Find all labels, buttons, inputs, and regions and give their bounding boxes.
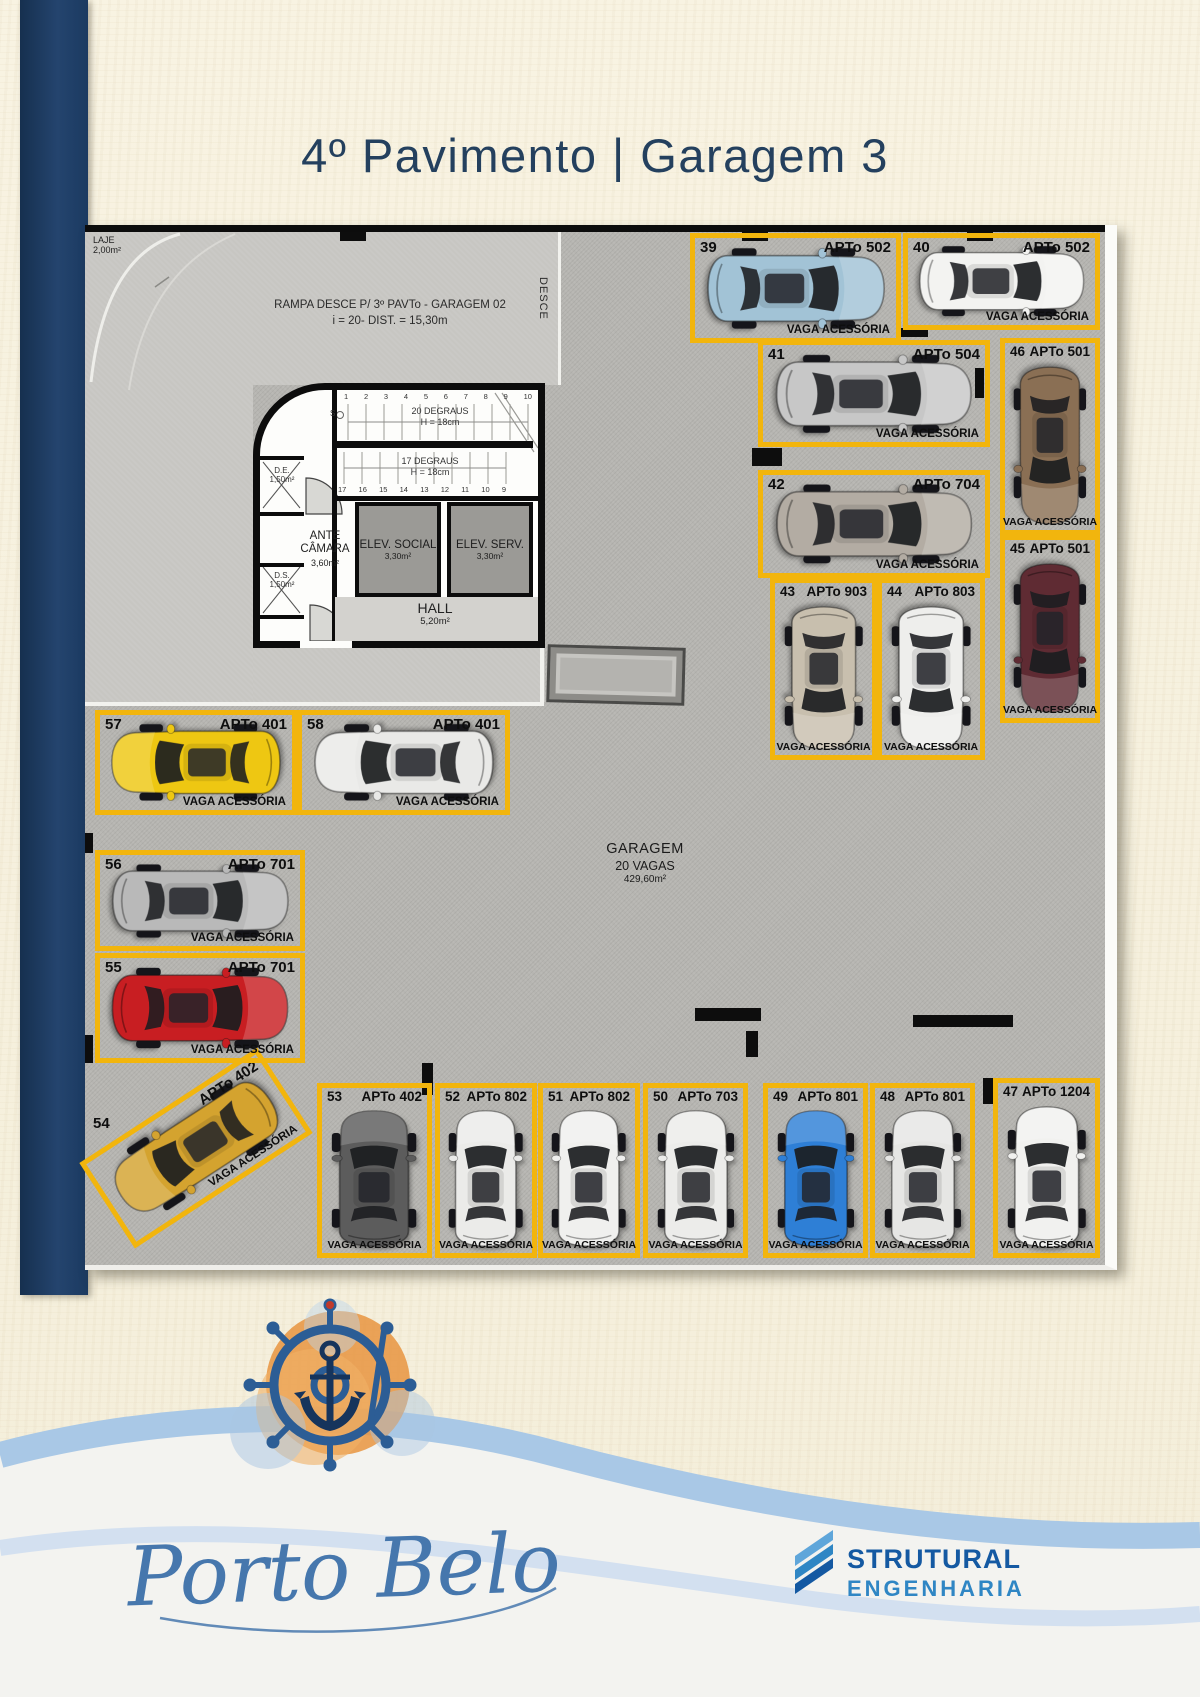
parking-spot-52: 52APTo 802 VAGA ACESSÓRIA — [435, 1083, 537, 1258]
spot-apartment-label: APTo 704 — [913, 476, 980, 493]
spot-number: 56 — [105, 856, 122, 873]
parking-spot-53: 53APTo 402 VAGA ACESSÓRIA — [317, 1083, 432, 1258]
vaga-acessoria-label: VAGA ACESSÓRIA — [999, 1239, 1093, 1251]
stair-numbers-up: 12345678910 — [344, 392, 532, 401]
spot-apartment-label: APTo 701 — [228, 959, 295, 976]
spot-apartment-label: APTo 401 — [433, 716, 500, 733]
vaga-acessoria-label: VAGA ACESSÓRIA — [768, 1239, 862, 1251]
pillar — [340, 232, 366, 241]
stair-elevator-core: 12345678910 S 20 DEGRAUSH = 18cm 17 DEGR… — [253, 383, 545, 648]
core-wall — [332, 496, 538, 501]
vaga-acessoria-label: VAGA ACESSÓRIA — [986, 311, 1089, 323]
car-top-view — [110, 863, 290, 938]
spot-apartment-label: APTo 401 — [220, 716, 287, 733]
vaga-acessoria-label: VAGA ACESSÓRIA — [884, 741, 978, 753]
spot-apartment-label: APTo 501 — [1029, 344, 1090, 359]
parking-spot-47: 47APTo 1204 VAGA ACESSÓRIA — [993, 1078, 1100, 1258]
spot-number: 51 — [548, 1089, 563, 1104]
parking-spot-40: 40APTo 502 VAGA ACESSÓRIA — [903, 233, 1100, 330]
vaga-acessoria-label: VAGA ACESSÓRIA — [191, 932, 294, 944]
spot-number: 58 — [307, 716, 324, 733]
spot-apartment-label: APTo 903 — [806, 584, 867, 599]
spot-apartment-label: APTo 803 — [914, 584, 975, 599]
core-wall — [260, 456, 304, 460]
car-top-view — [774, 484, 974, 564]
spot-number-54: 54 — [93, 1115, 110, 1132]
spot-number: 48 — [880, 1089, 895, 1104]
ante-camara-label: ANTE CÂMARA 3,60m² — [290, 530, 360, 568]
ramp-label: RAMPA DESCE P/ 3º PAVTo - GARAGEM 02i = … — [235, 297, 545, 329]
spot-apartment-label: APTo 502 — [1023, 239, 1090, 256]
vaga-acessoria-label: VAGA ACESSÓRIA — [439, 1239, 533, 1251]
spot-number: 39 — [700, 239, 717, 256]
car-top-view — [448, 1109, 523, 1248]
vaga-acessoria-label: VAGA ACESSÓRIA — [876, 559, 979, 571]
pillar — [85, 1035, 93, 1063]
stair-start-label: S — [330, 409, 335, 418]
vaga-acessoria-label: VAGA ACESSÓRIA — [1003, 704, 1097, 716]
page-title: 4º Pavimento | Garagem 3 — [85, 128, 1105, 183]
spot-number: 49 — [773, 1089, 788, 1104]
core-wall — [260, 615, 304, 619]
core-wall — [260, 512, 304, 516]
spot-number: 55 — [105, 959, 122, 976]
vaga-acessoria-label: VAGA ACESSÓRIA — [776, 741, 870, 753]
spot-apartment-label: APTo 504 — [913, 346, 980, 363]
stair-numbers-down: 17161514131211109 — [338, 485, 506, 494]
parking-spot-49: 49APTo 801 VAGA ACESSÓRIA — [763, 1083, 868, 1258]
spot-apartment-label: APTo 802 — [466, 1089, 527, 1104]
spot-apartment-label: APTo 801 — [797, 1089, 858, 1104]
navy-side-bar — [20, 0, 88, 1295]
elevator-service: ELEV. SERV. 3,30m² — [447, 502, 533, 597]
porto-belo-emblem — [230, 1299, 435, 1472]
vaga-acessoria-label: VAGA ACESSÓRIA — [876, 428, 979, 440]
parking-spot-55: 55APTo 701 VAGA ACESSÓRIA — [95, 953, 305, 1063]
aisle-line-h — [85, 702, 543, 706]
ds-room-label: D.S.1,50m² — [264, 571, 300, 589]
parking-spot-41: 41APTo 504 VAGA ACESSÓRIA — [758, 340, 990, 447]
car-top-view — [1013, 562, 1087, 714]
vaga-acessoria-label: VAGA ACESSÓRIA — [787, 324, 890, 336]
parking-spot-51: 51APTo 802 VAGA ACESSÓRIA — [538, 1083, 640, 1258]
elevator-social: ELEV. SOCIAL 3,30m² — [355, 502, 441, 597]
vaga-acessoria-label: VAGA ACESSÓRIA — [327, 1239, 421, 1251]
spot-apartment-label: APTo 801 — [904, 1089, 965, 1104]
desce-divider — [558, 232, 561, 385]
parking-spot-44: 44APTo 803 VAGA ACESSÓRIA — [877, 578, 985, 760]
car-top-view — [1007, 1105, 1087, 1249]
spot-number: 44 — [887, 584, 902, 599]
parking-spot-56: 56APTo 701 VAGA ACESSÓRIA — [95, 850, 305, 951]
car-top-view — [110, 967, 290, 1049]
company-subtitle: ENGENHARIA — [847, 1576, 1025, 1601]
spot-apartment-label: APTo 1204 — [1022, 1084, 1090, 1099]
car-top-view — [777, 1109, 855, 1248]
car-top-view — [705, 247, 886, 329]
door-gap — [300, 641, 352, 648]
car-top-view — [331, 1109, 417, 1248]
vaga-acessoria-label: VAGA ACESSÓRIA — [1003, 516, 1097, 528]
parking-spot-39: 39APTo 502 VAGA ACESSÓRIA — [690, 233, 901, 343]
vaga-acessoria-label: VAGA ACESSÓRIA — [648, 1239, 742, 1251]
spot-number: 57 — [105, 716, 122, 733]
spot-number: 40 — [913, 239, 930, 256]
spot-number: 47 — [1003, 1084, 1018, 1099]
vaga-acessoria-label: VAGA ACESSÓRIA — [875, 1239, 969, 1251]
stairs-down-label: 17 DEGRAUSH = 18cm — [370, 456, 490, 478]
spot-apartment-label: APTo 701 — [228, 856, 295, 873]
wall-stub — [695, 1008, 761, 1021]
spot-number: 50 — [653, 1089, 668, 1104]
spot-apartment-label: APTo 402 — [361, 1089, 422, 1104]
service-cart — [546, 644, 685, 706]
spot-number: 52 — [445, 1089, 460, 1104]
car-top-view — [884, 1109, 962, 1248]
car-top-view — [784, 605, 864, 751]
spot-number: 41 — [768, 346, 785, 363]
hall-label: HALL 5,20m² — [380, 600, 490, 627]
spot-apartment-label: APTo 502 — [824, 239, 891, 256]
spot-number: 53 — [327, 1089, 342, 1104]
plan-top-wall — [85, 225, 1105, 232]
parking-spot-46: 46APTo 501 VAGA ACESSÓRIA — [1000, 338, 1100, 535]
spot-number: 43 — [780, 584, 795, 599]
desce-label: DESCE — [537, 277, 549, 320]
hall-front-aisle — [253, 648, 545, 702]
company-name: STRUTURAL — [847, 1544, 1021, 1574]
wall-stub — [913, 1015, 1013, 1027]
spot-number — [91, 1163, 100, 1177]
parking-spot-45: 45APTo 501 VAGA ACESSÓRIA — [1000, 535, 1100, 723]
parking-spot-58: 58APTo 401 VAGA ACESSÓRIA — [297, 710, 510, 815]
vaga-acessoria-label: VAGA ACESSÓRIA — [396, 796, 499, 808]
car-top-view — [551, 1109, 626, 1248]
spot-apartment-label: APTo 802 — [569, 1089, 630, 1104]
parking-spot-43: 43APTo 903 VAGA ACESSÓRIA — [770, 578, 877, 760]
footer-graphics: Porto Belo STRUTURAL ENGENHARIA — [0, 1280, 1200, 1697]
spot-number: 46 — [1010, 344, 1025, 359]
stair-landing — [336, 441, 533, 448]
floor-plan: LAJE2,00m² RAMPA DESCE P/ 3º PAVTo - GAR… — [85, 225, 1117, 1270]
de-room-label: D.E.1,50m² — [264, 466, 300, 484]
car-top-view — [774, 354, 974, 434]
pillar — [752, 448, 782, 466]
car-top-view — [657, 1109, 735, 1248]
pillar — [85, 833, 93, 853]
stairs-up-label: 20 DEGRAUSH = 18cm — [380, 406, 500, 428]
vaga-acessoria-label: VAGA ACESSÓRIA — [191, 1044, 294, 1056]
pillar — [746, 1031, 758, 1057]
car-top-view — [312, 724, 495, 802]
vaga-acessoria-label: VAGA ACESSÓRIA — [542, 1239, 636, 1251]
parking-spot-42: 42APTo 704 VAGA ACESSÓRIA — [758, 470, 990, 578]
spot-apartment-label: APTo 501 — [1029, 541, 1090, 556]
car-top-view — [110, 724, 283, 802]
car-top-view — [891, 605, 971, 751]
spot-number: 45 — [1010, 541, 1025, 556]
parking-spot-48: 48APTo 801 VAGA ACESSÓRIA — [870, 1083, 975, 1258]
car-top-view — [917, 246, 1085, 317]
parking-spot-54: APTo 402 VAGA ACESSÓRIA — [79, 1047, 312, 1248]
garage-area-label: GARAGEM 20 VAGAS 429,60m² — [555, 841, 735, 885]
parking-spot-50: 50APTo 703 VAGA ACESSÓRIA — [643, 1083, 748, 1258]
vaga-acessoria-label: VAGA ACESSÓRIA — [183, 796, 286, 808]
spot-apartment-label: APTo 703 — [677, 1089, 738, 1104]
brand-script-text: Porto Belo — [124, 1515, 562, 1625]
page: { "page": {"title": "4º Pavimento | Gara… — [0, 0, 1200, 1697]
parking-spot-57: 57APTo 401 VAGA ACESSÓRIA — [95, 710, 297, 815]
laje-label: LAJE2,00m² — [93, 235, 121, 255]
spot-number: 42 — [768, 476, 785, 493]
car-top-view — [1013, 365, 1087, 526]
